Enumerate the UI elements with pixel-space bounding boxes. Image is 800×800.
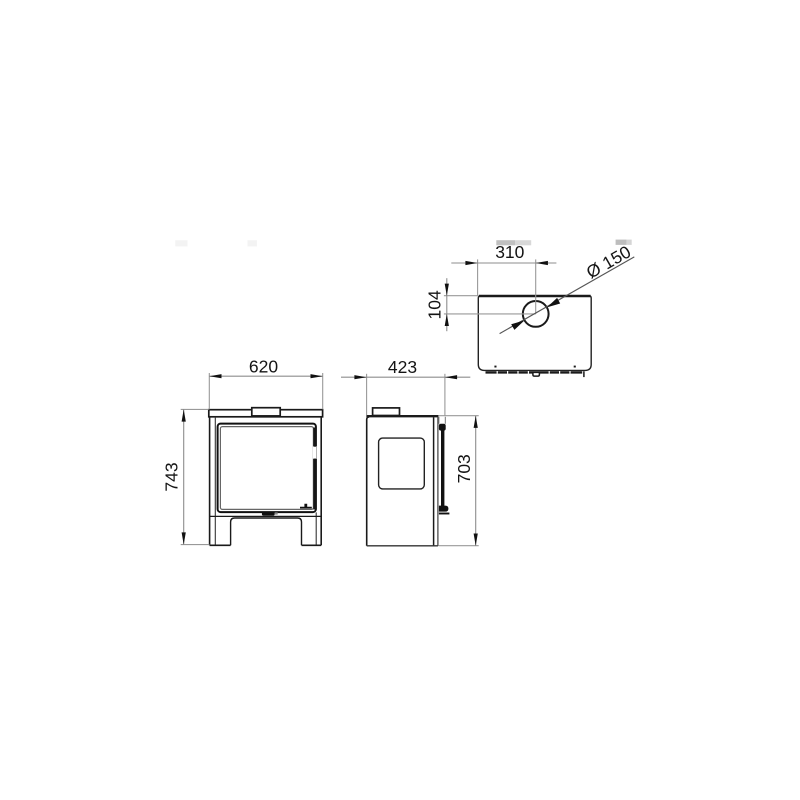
- svg-text:620: 620: [249, 356, 278, 376]
- svg-text:743: 743: [161, 462, 181, 491]
- svg-text:310: 310: [495, 242, 524, 262]
- svg-text:Ø 150: Ø 150: [583, 241, 635, 282]
- svg-text:104: 104: [424, 290, 444, 319]
- svg-text:703: 703: [454, 454, 474, 483]
- svg-text:423: 423: [388, 357, 417, 377]
